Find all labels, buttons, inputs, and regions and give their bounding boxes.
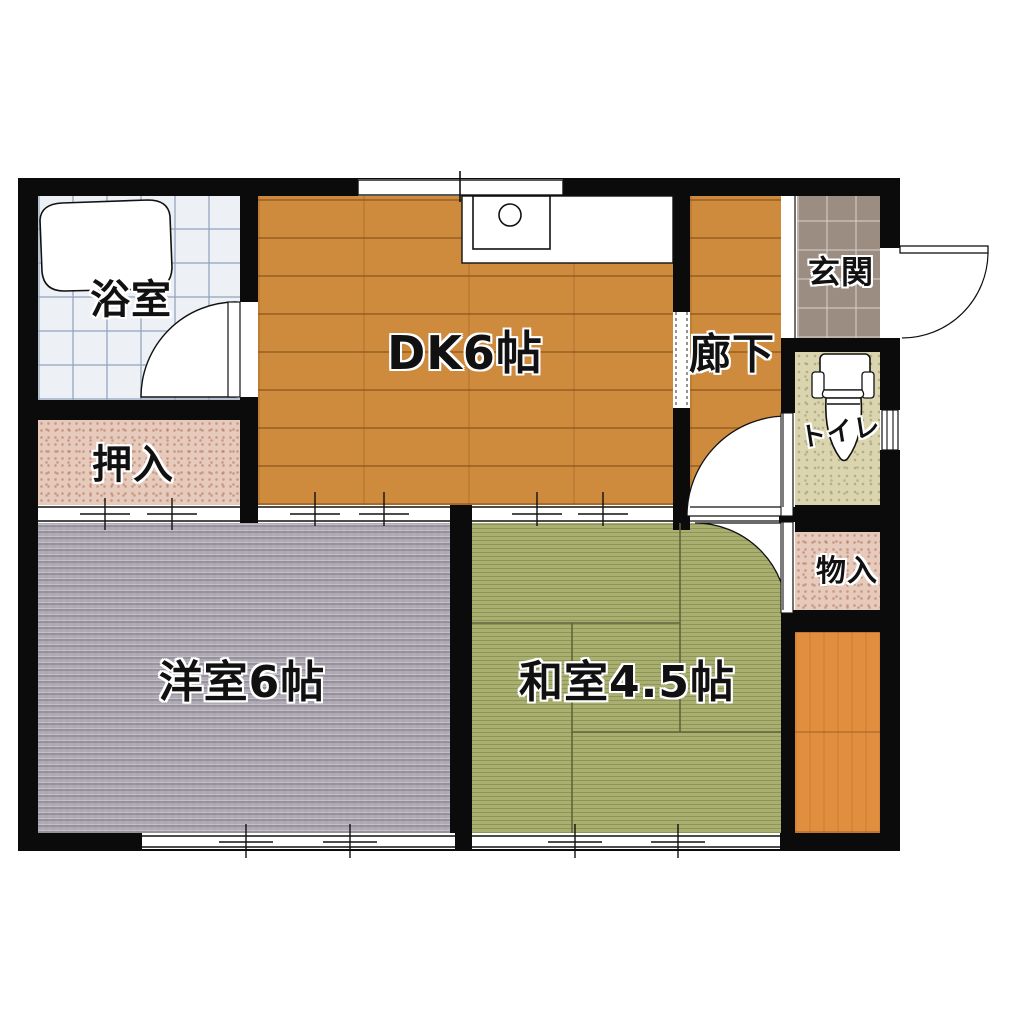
opening-bath-door [240,302,258,397]
opening-entrance-door [880,248,900,338]
entrance-door-icon [900,246,988,338]
label-dining-kitchen: DK6帖 [387,317,543,383]
entrance-step [781,196,797,338]
kitchen-counter [462,196,673,263]
label-bathroom: 浴室 [90,267,172,325]
label-closet: 押入 [92,432,174,490]
opening-storage-door [781,522,795,610]
floor-plan: 浴室 押入 DK6帖 廊下 玄関 トイレ 物入 洋室6帖 和室4.5帖 [0,0,1024,1024]
room-wood-strip [795,632,880,833]
label-japanese-room: 和室4.5帖 [519,646,735,710]
wall-bath-bottom [18,400,258,420]
wall-strip-left [781,632,795,833]
wall-left [18,178,38,851]
label-storage: 物入 [816,546,878,590]
opening-toilet-window [880,410,900,450]
wall-toilet-left [781,352,795,413]
sliding-closet-west [38,505,240,523]
opening-corridor-japanese [690,505,779,523]
label-corridor: 廊下 [689,321,775,382]
label-entrance: 玄関 [808,247,874,293]
sliding-dk-west [258,505,450,523]
window-japanese-bottom [472,833,780,849]
sliding-dk-japanese [472,505,673,523]
opening-toilet-door [781,413,795,507]
label-western-room: 洋室6帖 [159,646,326,710]
wall-storage-bottom [781,610,900,632]
wall-entry-bottom [781,338,900,352]
wall-toilet-bottom [779,505,900,532]
window-west-bottom [142,833,455,849]
wall-west-east [450,505,472,851]
opening-dk-corridor [673,312,690,408]
window-dk-top [358,179,563,196]
